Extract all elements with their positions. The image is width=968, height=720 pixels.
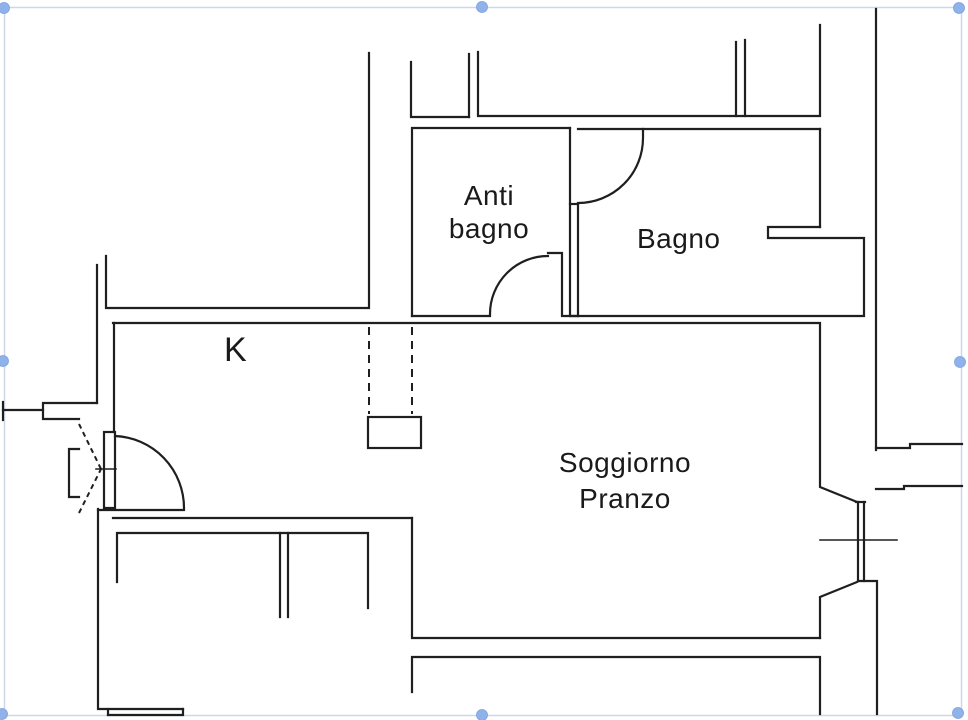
resize-handle-bottom-center[interactable]: [477, 710, 488, 720]
room-label-antibagno-line1: Anti: [409, 179, 569, 212]
resize-handle-top-center[interactable]: [477, 2, 488, 13]
room-label-antibagno: Anti bagno: [409, 179, 569, 245]
dashed-lines-layer: [369, 327, 412, 414]
room-label-soggiorno-line1: Soggiorno: [545, 445, 705, 481]
selection-border: [5, 8, 962, 716]
resize-handle-bottom-right[interactable]: [953, 708, 964, 719]
floor-plan-image[interactable]: [0, 0, 968, 720]
room-label-bagno: Bagno: [637, 223, 720, 255]
resize-handle-middle-left[interactable]: [0, 356, 9, 367]
resize-handle-top-left[interactable]: [0, 3, 10, 14]
room-label-soggiorno-line2: Pranzo: [545, 481, 705, 517]
resize-handle-middle-right[interactable]: [955, 357, 966, 368]
room-label-soggiorno: Soggiorno Pranzo: [545, 445, 705, 517]
walls-layer: [3, 9, 962, 715]
room-label-antibagno-line2: bagno: [409, 212, 569, 245]
resize-handle-top-right[interactable]: [954, 3, 965, 14]
room-label-kitchen: K: [224, 331, 247, 370]
floor-plan-canvas[interactable]: Anti bagno Bagno K Soggiorno Pranzo: [0, 0, 968, 720]
thin-lines-layer: [96, 469, 897, 540]
resize-handle-bottom-left[interactable]: [0, 709, 8, 720]
